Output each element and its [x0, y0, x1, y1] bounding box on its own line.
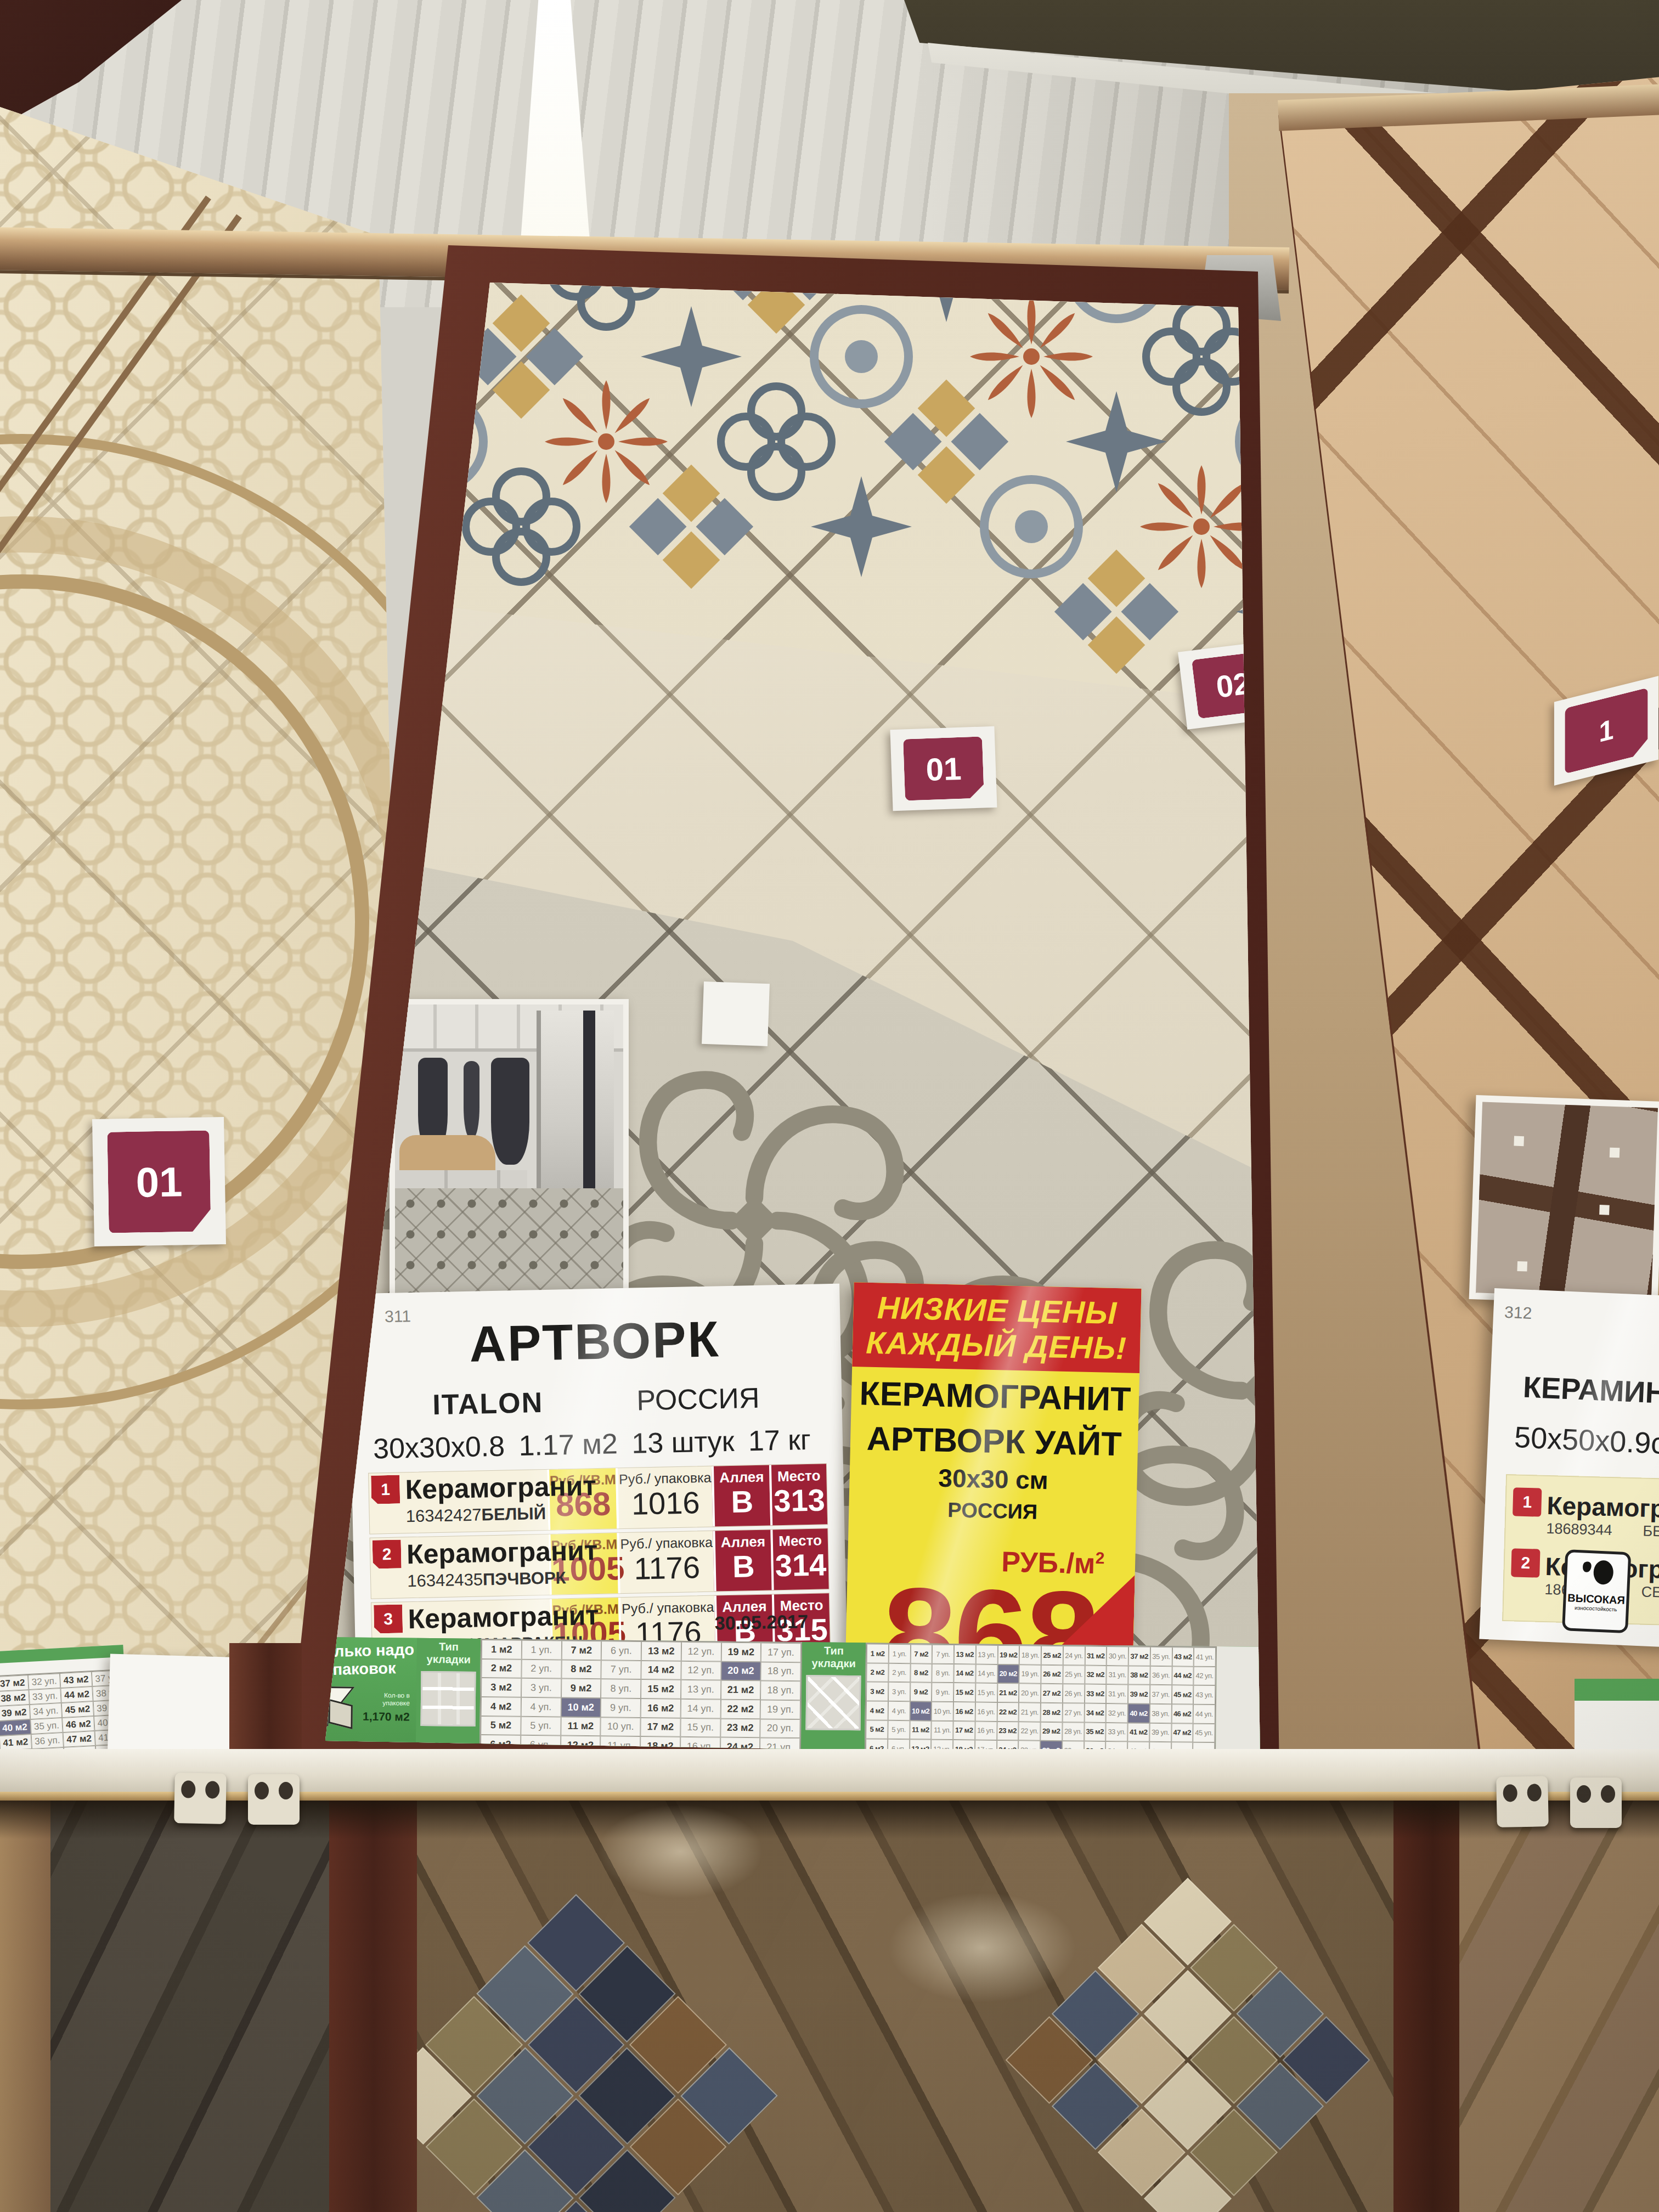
location-badge-01: 01 [890, 726, 997, 811]
promo-line: КАЖДЫЙ ДЕНЬ! [852, 1325, 1140, 1367]
area-cell: 26 м2 [1041, 1664, 1063, 1684]
price-pack-value: 1016 [618, 1486, 713, 1521]
badge-number: 01 [903, 737, 984, 801]
packs-cell: 3 уп. [521, 1678, 561, 1697]
packs-cell: 16 уп. [975, 1702, 997, 1721]
product-color: СЕ [1641, 1584, 1659, 1601]
area-cell: 9 м2 [561, 1679, 601, 1698]
print-date: 30.05.2017 [714, 1611, 808, 1634]
packs-cell: 38 уп. [1149, 1704, 1171, 1723]
aisle-value: В [714, 1485, 770, 1519]
wear-icon-blobs [1577, 1557, 1617, 1592]
area-cell: 14 м2 [953, 1664, 975, 1683]
packs-cell: 32 уп. [28, 1673, 60, 1690]
patchwork-insert [417, 1894, 778, 2212]
area-cell: 46 м2 [62, 1716, 94, 1733]
coat [491, 1058, 530, 1164]
rail-clip [174, 1773, 227, 1824]
sheet-number: 311 [385, 1307, 411, 1326]
brand: КЕРАМИН [1522, 1369, 1659, 1410]
packs-cell: 6 уп. [601, 1641, 641, 1660]
area-cell: 15 м2 [953, 1683, 975, 1702]
area-cell: 40 м2 [1128, 1703, 1150, 1723]
packs-cell: 44 уп. [1193, 1705, 1215, 1724]
blank-card [702, 981, 770, 1046]
product-name: Керамогранит [405, 1473, 545, 1503]
straight-layout-icon [420, 1671, 476, 1726]
row-number-badge: 2 [1511, 1548, 1540, 1577]
product-color: БЕЛЫЙ [481, 1504, 546, 1525]
place-cell: Место314 [770, 1528, 829, 1590]
pack-area: 1,170 м2 [358, 1710, 410, 1724]
pack-area: 1.17 м2 [518, 1427, 618, 1462]
packs-cell: 2 уп. [521, 1659, 561, 1678]
area-cell: 7 м2 [910, 1644, 932, 1663]
pack-pieces: 13 штук [631, 1425, 735, 1460]
packs-cell: 20 уп. [760, 1719, 800, 1738]
packs-cell: 9 уп. [932, 1683, 953, 1702]
place-value: 314 [773, 1549, 828, 1582]
tile-motif [721, 386, 832, 497]
rail-clip [1570, 1778, 1622, 1828]
area-cell: 35 м2 [1084, 1722, 1106, 1741]
rail-clip [1496, 1776, 1549, 1827]
area-cell: 10 м2 [561, 1698, 601, 1717]
packs-cell: 19 уп. [760, 1700, 800, 1719]
packs-cell: 5 уп. [888, 1720, 910, 1739]
product-name: Керамогранит [1547, 1491, 1659, 1525]
packs-cell: 39 уп. [1149, 1723, 1171, 1742]
bottom-right-wood-panel [1459, 1794, 1659, 2212]
tile-size: 30х30 см [849, 1461, 1137, 1497]
rail-clip [248, 1774, 300, 1825]
packs-cell: 1 уп. [522, 1640, 562, 1660]
area-cell: 41 м2 [1127, 1723, 1149, 1742]
area-cell: 28 м2 [1041, 1703, 1063, 1722]
area-cell: 39 м2 [0, 1705, 30, 1721]
packs-cell: 9 уп. [601, 1698, 641, 1717]
product-code: 16342435 [407, 1570, 483, 1591]
area-cell: 21 м2 [997, 1683, 1019, 1702]
pack-note: Кол-во в упаковке [358, 1691, 410, 1707]
tile-motif [984, 479, 1079, 574]
packs-cell: 30 уп. [1107, 1646, 1128, 1666]
place-value: 313 [771, 1484, 827, 1517]
light-glare [889, 1893, 1075, 2002]
packs-cell: 20 уп. [1019, 1684, 1041, 1703]
aisle-cell: АллеяВ [712, 1465, 770, 1526]
bottom-center-wood-panel [417, 1794, 1437, 2212]
packs-cell: 22 уп. [1019, 1722, 1041, 1741]
packs-cell: 19 уп. [1019, 1664, 1041, 1684]
price-pack-value: 1176 [620, 1550, 714, 1586]
area-cell: 43 м2 [60, 1672, 92, 1688]
tile-motif [641, 306, 742, 407]
row-number-badge: 2 [373, 1540, 402, 1569]
collection-title: АРТВОРК [365, 1308, 825, 1375]
area-cell: 14 м2 [641, 1661, 681, 1680]
promo-banner: НИЗКИЕ ЦЕНЫ КАЖДЫЙ ДЕНЬ! [852, 1282, 1141, 1373]
right-inset-photo [1469, 1095, 1659, 1306]
packs-cell: 31 уп. [1106, 1684, 1128, 1703]
area-cell: 40 м2 [0, 1719, 31, 1736]
packs-cell: 13 уп. [975, 1645, 997, 1664]
packs-cell: 26 уп. [1063, 1684, 1085, 1703]
area-cell: 32 м2 [1085, 1665, 1107, 1684]
area-cell: 3 м2 [481, 1678, 521, 1697]
packs-cell: 31 уп. [1107, 1666, 1128, 1685]
row-number-badge: 1 [371, 1475, 400, 1504]
product-row: 2Керамогранит16342435ПЭЧВОРКРуб./КВ.М100… [370, 1528, 830, 1599]
bottom-frame-post [329, 1794, 428, 2212]
product-name: Керамогранит [407, 1538, 547, 1568]
packs-cell: 28 уп. [1062, 1722, 1084, 1741]
packs-cell: 25 уп. [1063, 1665, 1085, 1684]
area-cell: 5 м2 [481, 1716, 521, 1735]
area-cell: 22 м2 [720, 1700, 760, 1719]
packs-cell: 4 уп. [521, 1697, 561, 1717]
layout-header: Тип укладки [417, 1638, 481, 1668]
tile-motif [970, 295, 1093, 418]
bottom-left-wood-panel [0, 1794, 351, 2212]
packs-cell: 14 уп. [975, 1664, 997, 1683]
area-cell: 19 м2 [721, 1643, 761, 1662]
product-code: 18689344 [1546, 1520, 1612, 1539]
area-cell: 17 м2 [953, 1721, 975, 1740]
pack-table-diagonal: 1 м21 уп.7 м27 уп.13 м213 уп.19 м218 уп.… [865, 1643, 1217, 1763]
area-cell: 43 м2 [1172, 1647, 1194, 1666]
area-cell: 13 м2 [641, 1641, 681, 1661]
tile-size: 30х30х0.8 [373, 1430, 505, 1465]
product-color: БЕЖЕВЫЙ [1643, 1523, 1659, 1542]
packs-cell: 16 уп. [975, 1721, 997, 1740]
area-cell: 16 м2 [953, 1702, 975, 1721]
room-photo-inset [390, 999, 629, 1306]
area-cell: 21 м2 [721, 1680, 761, 1700]
packs-cell: 14 уп. [680, 1699, 720, 1718]
packs-cell: 35 уп. [30, 1718, 63, 1734]
packs-cell: 12 уп. [681, 1661, 721, 1680]
product-info-sheet: 311 АРТВОРК ITALON РОССИЯ 30х30х0.8 1.17… [348, 1284, 847, 1654]
country: РОССИЯ [849, 1496, 1137, 1526]
packs-cell: 21 уп. [1019, 1702, 1041, 1722]
area-cell: 11 м2 [561, 1717, 601, 1736]
packs-cell: 41 уп. [1194, 1647, 1216, 1667]
area-cell: 39 м2 [1128, 1685, 1150, 1704]
aisle-cell: АллеяВ [713, 1530, 772, 1591]
area-cell: 8 м2 [910, 1663, 932, 1683]
bottom-left-frame-edge [0, 1794, 50, 2212]
area-cell: 4 м2 [481, 1697, 521, 1716]
tile-motif [814, 309, 909, 404]
packs-cell: 7 уп. [601, 1660, 641, 1679]
product-table: 1Керамогранит16342427БЕЛЫЙРуб./КВ.М868Ру… [368, 1463, 831, 1663]
diagonal-layout-icon [805, 1675, 861, 1730]
area-cell: 29 м2 [1040, 1722, 1062, 1741]
layout-type-straight: Тип укладки [416, 1638, 481, 1755]
area-cell: 4 м2 [866, 1701, 888, 1720]
area-cell: 19 м2 [997, 1645, 1019, 1664]
area-cell: 47 м2 [63, 1731, 95, 1747]
price-pack-cell: Руб./ упаковка1016 [616, 1466, 713, 1529]
area-cell: 15 м2 [641, 1679, 681, 1699]
place-cell: Место313 [769, 1464, 828, 1525]
area-cell: 34 м2 [1084, 1703, 1106, 1723]
area-cell: 27 м2 [1041, 1684, 1063, 1703]
tile-motif [811, 476, 912, 577]
area-cell: 8 м2 [561, 1660, 601, 1679]
bottom-frame-post [1393, 1794, 1465, 2212]
floor-accent-dots [1514, 1136, 1524, 1147]
layout-type-diagonal: Тип укладки [801, 1642, 866, 1759]
area-cell: 13 м2 [954, 1645, 976, 1664]
location-badge-left-panel: 01 [92, 1117, 226, 1246]
area-cell: 38 м2 [1128, 1666, 1150, 1685]
light-glare [598, 1805, 763, 1898]
packs-cell: 7 уп. [932, 1645, 954, 1664]
area-cell: 44 м2 [60, 1686, 93, 1703]
packs-cell: 15 уп. [680, 1718, 720, 1737]
packs-cell: 4 уп. [888, 1701, 910, 1720]
packs-cell: 43 уп. [1193, 1685, 1215, 1705]
area-cell: 1 м2 [482, 1640, 522, 1659]
area-cell: 16 м2 [641, 1699, 681, 1718]
area-cell: 2 м2 [866, 1663, 888, 1682]
packs-cell: 10 уп. [932, 1702, 953, 1721]
row-number-badge: 3 [374, 1605, 403, 1634]
area-cell: 2 м2 [481, 1659, 521, 1678]
packs-cell: 8 уп. [601, 1679, 641, 1699]
packs-cell: 27 уп. [1062, 1703, 1084, 1722]
packs-cell: 33 уп. [29, 1688, 61, 1705]
pack-table-straight: 1 м21 уп.7 м26 уп.13 м212 уп.19 м217 уп.… [479, 1639, 802, 1758]
packs-cell: 17 уп. [761, 1643, 801, 1662]
product-name: КЕРАМОГРАНИТ [851, 1374, 1139, 1418]
packs-cell: 15 уп. [975, 1683, 997, 1702]
country: РОССИЯ [636, 1381, 760, 1417]
area-cell: 23 м2 [997, 1722, 1019, 1741]
area-cell: 23 м2 [720, 1718, 760, 1737]
product-name-cell: 2Керамогранит16342435ПЭЧВОРК [370, 1534, 550, 1599]
packs-cell: 10 уп. [601, 1717, 641, 1736]
packs-cell: 36 уп. [1150, 1666, 1172, 1685]
area-cell: 17 м2 [640, 1718, 680, 1737]
area-cell: 37 м2 [1128, 1646, 1150, 1666]
area-cell: 47 м2 [1171, 1723, 1193, 1742]
mirror-wardrobe [537, 1011, 614, 1194]
packs-cell: 8 уп. [932, 1663, 954, 1683]
product-name: АРТВОРК УАЙТ [850, 1419, 1138, 1463]
area-cell: 46 м2 [1171, 1704, 1193, 1723]
wear-resistance-icon: ВЫСОКАЯ износостойкость [1562, 1549, 1631, 1633]
packs-cell: 5 уп. [521, 1716, 561, 1735]
packs-cell: 3 уп. [888, 1682, 910, 1701]
inset-photo-floor [1476, 1102, 1658, 1299]
area-cell: 1 м2 [867, 1644, 889, 1663]
area-cell: 20 м2 [721, 1661, 761, 1680]
packs-cell: 18 уп. [1019, 1645, 1041, 1664]
area-cell: 9 м2 [910, 1683, 932, 1702]
tile-size: 50х50х0.9см [1514, 1420, 1659, 1462]
product-name: Керамогранит [408, 1602, 548, 1633]
area-cell: 25 м2 [1041, 1646, 1063, 1665]
packs-cell: 2 уп. [888, 1663, 910, 1682]
area-cell: 7 м2 [561, 1641, 601, 1660]
packs-cell: 35 уп. [1150, 1647, 1172, 1666]
packs-cell: 18 уп. [760, 1681, 800, 1700]
right-info-sheet: 312 ВУ КЕРАМИН 50х50х0.9см 1Керамогранит… [1479, 1288, 1659, 1648]
product-name-cell: 1Керамогранит16342427БЕЛЫЙ [369, 1470, 548, 1534]
packs-cell: 45 уп. [1193, 1723, 1215, 1742]
tile-motif [466, 471, 577, 582]
packs-cell: 12 уп. [681, 1642, 721, 1661]
packs-cell: 36 уп. [31, 1733, 64, 1749]
area-cell: 3 м2 [866, 1682, 888, 1701]
area-cell: 31 м2 [1085, 1646, 1107, 1666]
packs-cell: 1 уп. [888, 1644, 910, 1663]
product-color: ПЭЧВОРК [483, 1568, 566, 1589]
packs-cell: 37 уп. [1150, 1685, 1172, 1704]
area-cell: 5 м2 [866, 1720, 888, 1739]
product-row: 1Керамогранит16342427БЕЛЫЙРуб./КВ.М868Ру… [368, 1463, 828, 1534]
area-cell: 41 м2 [0, 1734, 32, 1751]
product-code: 16342427 [405, 1505, 482, 1526]
row-number-badge: 1 [1513, 1487, 1542, 1516]
area-cell: 20 м2 [997, 1664, 1019, 1684]
product-row: 1Керамогранит18689344БЕЖЕВЫЙ [1512, 1489, 1659, 1542]
tile-store-display-photo: 01 37 м232 уп.43 м237 уп.38 м233 уп.44 м… [0, 0, 1659, 2212]
packs-cell: 32 уп. [1106, 1703, 1128, 1723]
packs-cell: 33 уп. [1105, 1723, 1127, 1742]
packs-cell: 11 уп. [932, 1720, 953, 1740]
area-cell: 38 м2 [0, 1690, 30, 1706]
sheet-number: 312 [1504, 1303, 1659, 1330]
packs-cell: 18 уп. [761, 1662, 801, 1681]
patterned-floor [395, 1188, 623, 1301]
price-pack-cell: Руб./ упаковка1176 [617, 1531, 714, 1594]
area-cell: 10 м2 [910, 1701, 932, 1720]
area-cell: 44 м2 [1172, 1666, 1194, 1685]
coat [464, 1061, 479, 1138]
area-cell: 45 м2 [61, 1701, 94, 1718]
tile-motif [545, 380, 668, 503]
area-cell: 33 м2 [1084, 1684, 1106, 1703]
badge-number: 01 [107, 1130, 211, 1233]
brand: ITALON [432, 1386, 544, 1421]
pack-weight: 17 кг [748, 1423, 811, 1457]
packs-cell: 42 уп. [1194, 1666, 1216, 1685]
area-cell: 22 м2 [997, 1702, 1019, 1722]
area-cell: 37 м2 [0, 1675, 29, 1691]
area-cell: 11 м2 [910, 1720, 932, 1740]
price-tag: НИЗКИЕ ЦЕНЫ КАЖДЫЙ ДЕНЬ! КЕРАМОГРАНИТ АР… [845, 1282, 1141, 1657]
product-sub: 18689344БЕЖЕВЫЙ [1546, 1520, 1659, 1542]
packs-cell: 24 уп. [1063, 1646, 1085, 1665]
packs-cell: 34 уп. [30, 1703, 62, 1719]
packs-cell: 13 уп. [681, 1680, 721, 1699]
badge-number: 1 [1565, 687, 1647, 774]
layout-header: Тип укладки [802, 1642, 866, 1672]
aisle-value: В [716, 1550, 771, 1583]
area-cell: 45 м2 [1171, 1685, 1193, 1705]
room-photo-content [395, 1005, 623, 1301]
tile-motif [1066, 391, 1167, 492]
